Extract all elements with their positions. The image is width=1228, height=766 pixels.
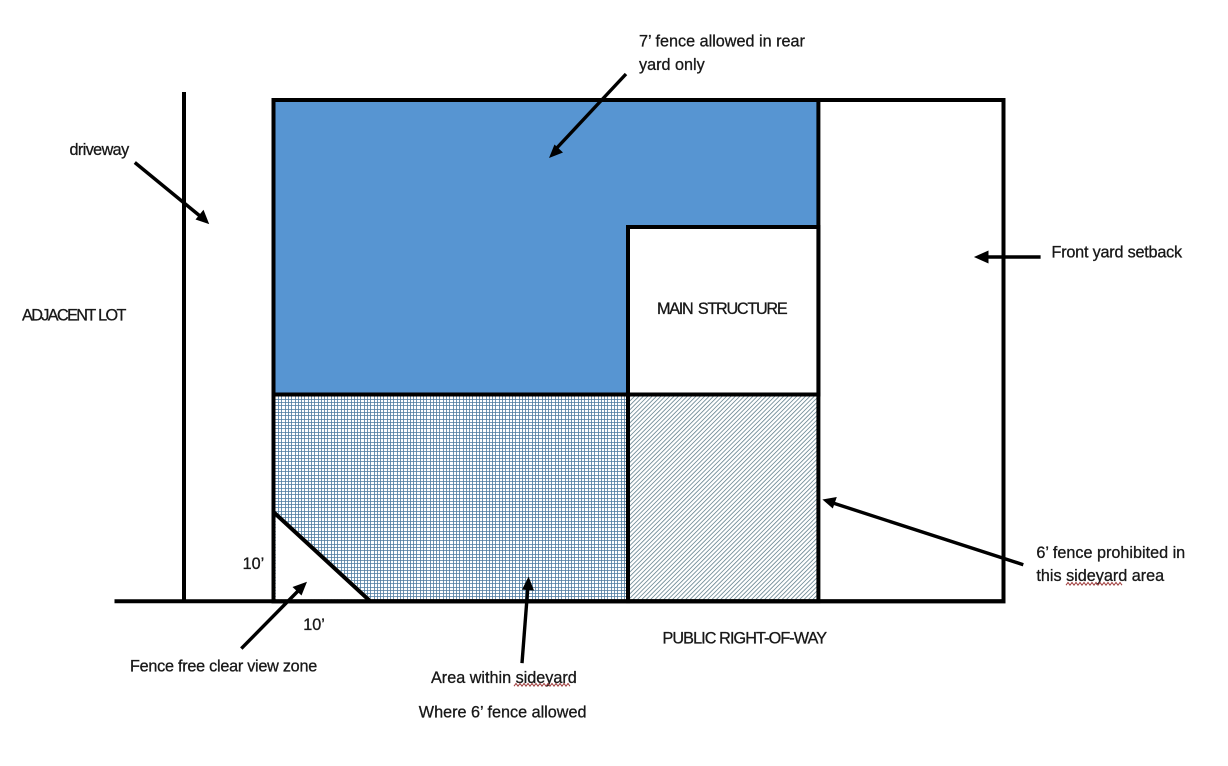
svg-text:6’ fence prohibited in: 6’ fence prohibited in	[1036, 544, 1185, 562]
svg-text:Where 6’ fence allowed: Where 6’ fence allowed	[419, 703, 587, 721]
svg-text:MAIN STRUCTURE: MAIN STRUCTURE	[657, 300, 788, 318]
svg-text:Fence free clear view zone: Fence free clear view zone	[130, 657, 317, 675]
svg-text:yard only: yard only	[639, 56, 706, 74]
svg-text:driveway: driveway	[70, 141, 131, 159]
svg-text:10’: 10’	[243, 555, 265, 573]
svg-text:7’ fence allowed in rear: 7’ fence allowed in rear	[639, 33, 805, 51]
svg-text:10’: 10’	[303, 616, 325, 634]
svg-text:ADJACENTLOT: ADJACENTLOT	[22, 306, 127, 324]
svg-text:PUBLIC RIGHT-OF-WAY: PUBLIC RIGHT-OF-WAY	[663, 630, 828, 648]
svg-text:Front yard setback: Front yard setback	[1052, 244, 1184, 262]
